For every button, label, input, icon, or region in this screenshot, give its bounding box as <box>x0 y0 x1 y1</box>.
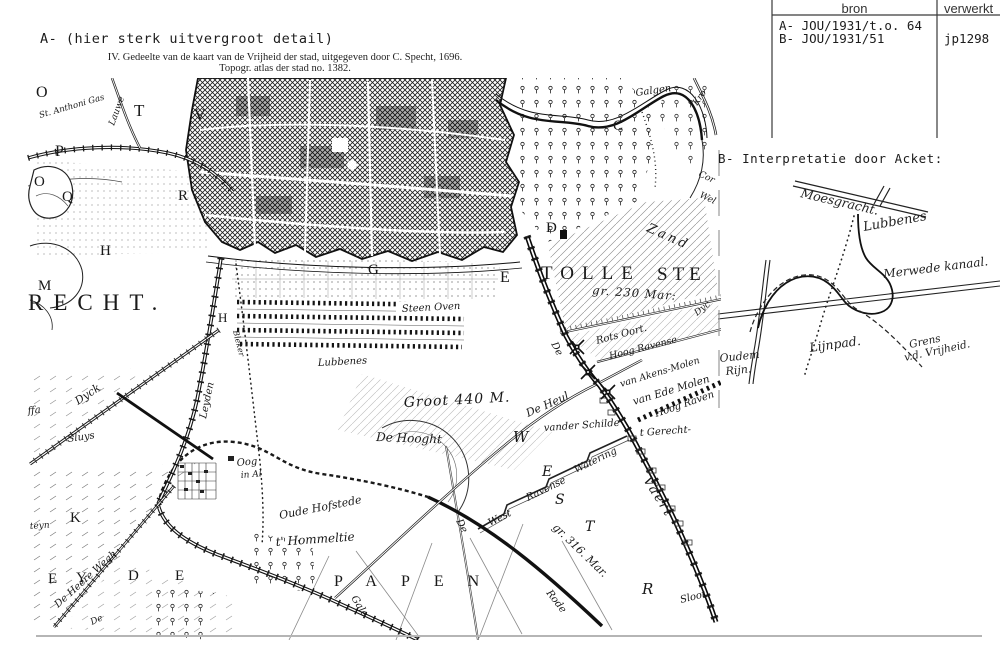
map-label: R <box>641 580 653 598</box>
map-label: Q <box>62 189 73 205</box>
map-label: Oog <box>236 456 258 469</box>
table-header-verwerkt: verwerkt <box>937 1 1000 16</box>
map-label: gr. 316. Mar. <box>550 521 610 580</box>
map-label: PAPEN <box>334 573 503 590</box>
sketch-label: Lijnpad. <box>807 333 861 355</box>
sketch-label: Oudem <box>719 348 760 365</box>
caption-line-2: Topogr. atlas der stad no. 1382. <box>70 63 500 74</box>
map-label: O <box>34 174 45 190</box>
map-label: TOLLE <box>541 263 641 284</box>
map-label: Sloot. <box>679 588 710 606</box>
map-label: De Hooght <box>375 430 442 446</box>
map-figure: OTVPOQRHMHCDGEKRECHT.TOLLESTEPAPENEYDEWE… <box>0 0 1000 649</box>
map-label: vander Schilde <box>543 418 620 434</box>
map-label: De <box>548 339 565 357</box>
sketch-label: Rijn. <box>724 362 752 378</box>
map-label: E <box>541 464 552 480</box>
map-label: D <box>128 568 139 584</box>
map-label: ffa <box>26 405 41 417</box>
map-label: C <box>613 118 623 134</box>
sketch-label: Moesgracht. <box>798 185 880 218</box>
map-label: K <box>70 510 81 526</box>
map-label: De Heul <box>523 389 571 420</box>
caption-line-1: IV. Gedeelte van de kaart van de Vrijhei… <box>70 52 500 63</box>
table-header-bron: bron <box>772 1 937 16</box>
map-label: t Gerecht- <box>639 424 692 439</box>
map-label: E <box>500 269 510 286</box>
scanned-map-sheet: { "header_table": { "col1": "bron", "col… <box>0 0 1000 649</box>
map-label: D <box>546 220 557 236</box>
map-label: P <box>55 143 64 160</box>
map-label: STE <box>657 264 706 285</box>
sketch-label: Merwede kanaal. <box>882 254 989 281</box>
map-label: R <box>178 188 188 204</box>
map-label: E <box>175 568 184 584</box>
map-caption: IV. Gedeelte van de kaart van de Vrijhei… <box>70 52 500 74</box>
map-label: E <box>48 571 57 587</box>
map-label: Oude Hofstede <box>278 493 363 522</box>
map-label: H <box>218 310 227 325</box>
building-icon <box>560 230 567 239</box>
map-label: St. Anthoni Gas <box>38 93 106 121</box>
map-label: Sluys <box>67 430 96 445</box>
map-label: H <box>100 243 111 259</box>
map-label: Cor <box>697 170 717 186</box>
sketch-labels: Moesgracht.LubbenesMerwede kanaal.Lijnpa… <box>719 185 989 378</box>
table-cell-source-b: B- JOU/1931/51 <box>779 31 884 46</box>
map-label: Lubbenes <box>317 355 368 369</box>
map-geometry <box>28 78 730 640</box>
map-label: in Al <box>240 469 262 481</box>
map-label: V <box>194 107 206 124</box>
map-label: teyn <box>30 521 51 532</box>
map-label: S <box>555 492 565 508</box>
map-label: T <box>585 519 596 535</box>
map-label: RECHT. <box>28 290 167 315</box>
label-a-heading: A- (hier sterk uitvergroot detail) <box>40 31 333 47</box>
map-label: W <box>513 428 530 446</box>
map-label: T <box>134 101 145 120</box>
map-label: West <box>486 508 514 529</box>
map-label: G <box>368 262 379 278</box>
map-label: t' Hommeltie <box>275 530 355 549</box>
label-b-heading: B- Interpretatie door Acket: <box>718 151 943 166</box>
table-cell-processed: jp1298 <box>944 31 989 46</box>
map-label: Bleker <box>231 328 247 358</box>
map-label: O <box>36 84 48 101</box>
